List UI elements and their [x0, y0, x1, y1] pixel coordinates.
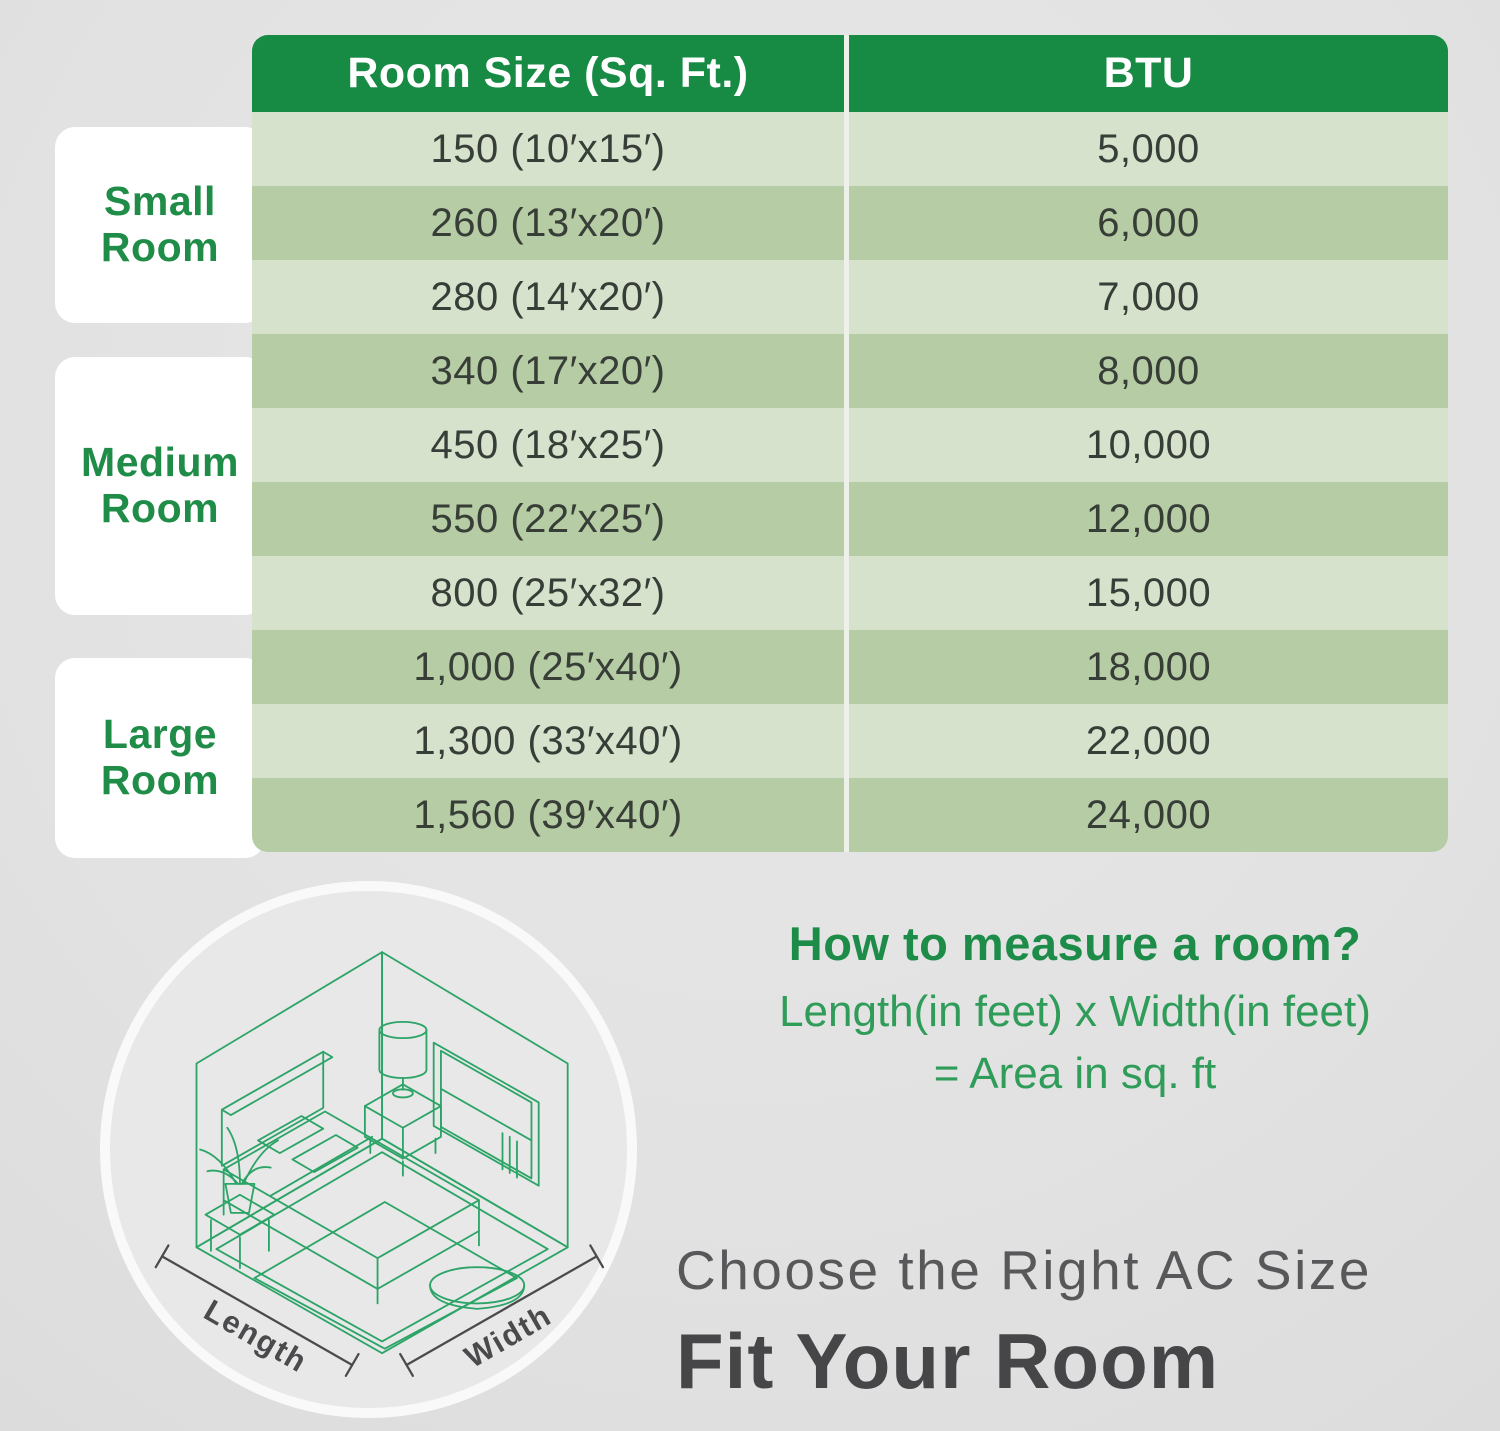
- btu-cell: 15,000: [849, 556, 1448, 630]
- lamp-icon: [379, 1022, 426, 1098]
- window-icon: [434, 1043, 539, 1186]
- room-size-cell: 340 (17′x20′): [252, 334, 844, 408]
- room-size-cell: 280 (14′x20′): [252, 260, 844, 334]
- table-row: 260 (13′x20′)6,000: [252, 186, 1448, 260]
- btu-cell: 7,000: [849, 260, 1448, 334]
- table-row: 550 (22′x25′)12,000: [252, 482, 1448, 556]
- measure-instructions: How to measure a room? Length(in feet) x…: [675, 916, 1475, 1107]
- table-row: 800 (25′x32′)15,000: [252, 556, 1448, 630]
- category-label-medium-room: Medium Room: [81, 440, 239, 532]
- room-size-cell: 1,000 (25′x40′): [252, 630, 844, 704]
- btu-cell: 10,000: [849, 408, 1448, 482]
- room-illustration-circle: Length Width: [100, 881, 637, 1418]
- table-row: 1,300 (33′x40′)22,000: [252, 704, 1448, 778]
- room-size-cell: 1,300 (33′x40′): [252, 704, 844, 778]
- room-size-cell: 150 (10′x15′): [252, 112, 844, 186]
- table-row: 1,560 (39′x40′)24,000: [252, 778, 1448, 852]
- table-row: 340 (17′x20′)8,000: [252, 334, 1448, 408]
- room-size-cell: 800 (25′x32′): [252, 556, 844, 630]
- category-card-medium-room: Medium Room: [55, 357, 265, 615]
- room-size-cell: 550 (22′x25′): [252, 482, 844, 556]
- footer-subtitle: Choose the Right AC Size: [676, 1238, 1372, 1302]
- footer-title: Fit Your Room: [676, 1316, 1372, 1407]
- btu-cell: 24,000: [849, 778, 1448, 852]
- table-row: 280 (14′x20′)7,000: [252, 260, 1448, 334]
- room-size-cell: 260 (13′x20′): [252, 186, 844, 260]
- category-label-small-room: Small Room: [101, 179, 219, 271]
- table-body: 150 (10′x15′)5,000260 (13′x20′)6,000280 …: [252, 112, 1448, 852]
- table-row: 1,000 (25′x40′)18,000: [252, 630, 1448, 704]
- btu-cell: 5,000: [849, 112, 1448, 186]
- table-row: 450 (18′x25′)10,000: [252, 408, 1448, 482]
- plant-icon: [200, 1128, 278, 1268]
- category-label-large-room: Large Room: [101, 712, 219, 804]
- measure-formula-line1: Length(in feet) x Width(in feet): [675, 983, 1475, 1041]
- rug-icon: [254, 1202, 517, 1349]
- measure-formula-line2: = Area in sq. ft: [675, 1045, 1475, 1103]
- btu-cell: 6,000: [849, 186, 1448, 260]
- category-card-small-room: Small Room: [55, 127, 265, 323]
- btu-cell: 12,000: [849, 482, 1448, 556]
- category-card-large-room: Large Room: [55, 658, 265, 858]
- btu-table: Room Size (Sq. Ft.) BTU 150 (10′x15′)5,0…: [252, 35, 1448, 852]
- room-illustration: Length Width: [115, 896, 622, 1403]
- infographic: Small Room Medium Room Large Room Room S…: [0, 0, 1500, 1431]
- btu-cell: 22,000: [849, 704, 1448, 778]
- table-header-row: Room Size (Sq. Ft.) BTU: [252, 35, 1448, 112]
- room-size-cell: 1,560 (39′x40′): [252, 778, 844, 852]
- btu-cell: 8,000: [849, 334, 1448, 408]
- table-row: 150 (10′x15′)5,000: [252, 112, 1448, 186]
- footer-titles: Choose the Right AC Size Fit Your Room: [676, 1238, 1372, 1407]
- room-size-cell: 450 (18′x25′): [252, 408, 844, 482]
- btu-cell: 18,000: [849, 630, 1448, 704]
- column-header-room-size: Room Size (Sq. Ft.): [252, 35, 844, 112]
- length-label: Length: [198, 1292, 314, 1379]
- measure-heading: How to measure a room?: [675, 916, 1475, 971]
- column-header-btu: BTU: [849, 35, 1448, 112]
